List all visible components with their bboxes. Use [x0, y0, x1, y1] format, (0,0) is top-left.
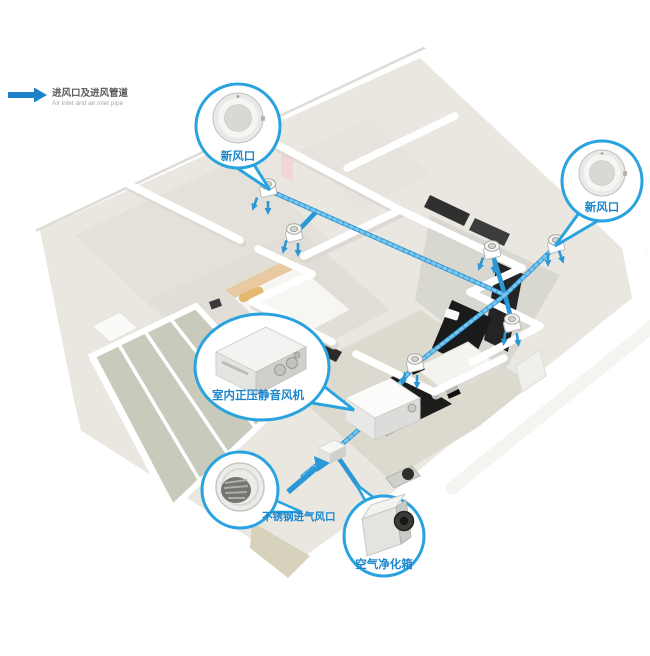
callout-label: 新风口 [221, 149, 256, 163]
legend-subtitle: Air inlet and air inlet pipe [52, 100, 124, 107]
fresh-air-system-diagram: 新风口 新风口 室内正压静音风机 [0, 0, 650, 656]
wall-bottom-band [300, 568, 428, 632]
ceiling-vent [503, 314, 521, 333]
callout-label: 新风口 [585, 200, 620, 214]
wall-east-edge [640, 248, 648, 300]
scene: 新风口 新风口 室内正压静音风机 [0, 0, 650, 656]
callout-label: 不锈钢进气风口 [262, 510, 336, 523]
ceiling-vent [406, 354, 424, 373]
air-inlet-arrow-icon [8, 88, 47, 103]
callout-label: 室内正压静音风机 [212, 388, 304, 402]
legend-title: 进风口及进风管道 [52, 87, 129, 99]
legend: 进风口及进风管道 Air inlet and air inlet pipe [8, 87, 129, 107]
ceiling-vent [285, 224, 303, 243]
ceiling-vent [483, 241, 501, 260]
stainless-vent-icon [216, 463, 264, 511]
callout-label: 空气净化箱 [355, 557, 413, 571]
